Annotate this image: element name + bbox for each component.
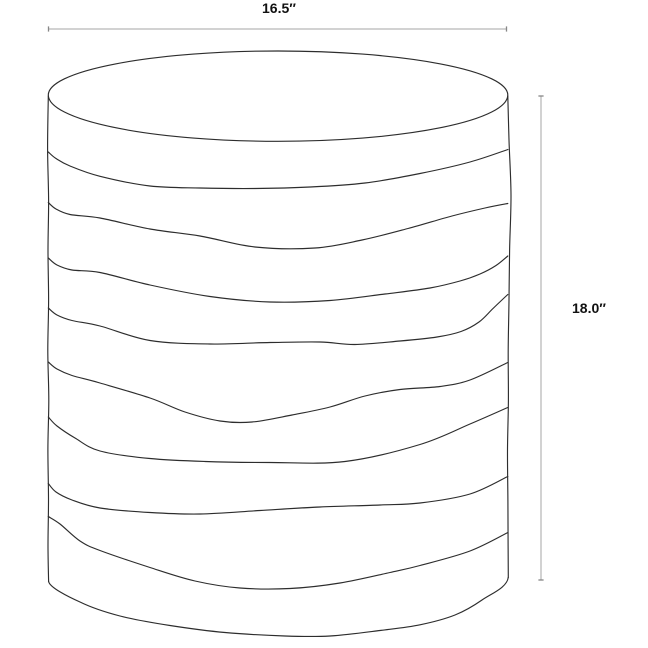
svg-text:18.0″: 18.0″ — [572, 300, 606, 316]
svg-text:16.5″: 16.5″ — [262, 0, 296, 16]
